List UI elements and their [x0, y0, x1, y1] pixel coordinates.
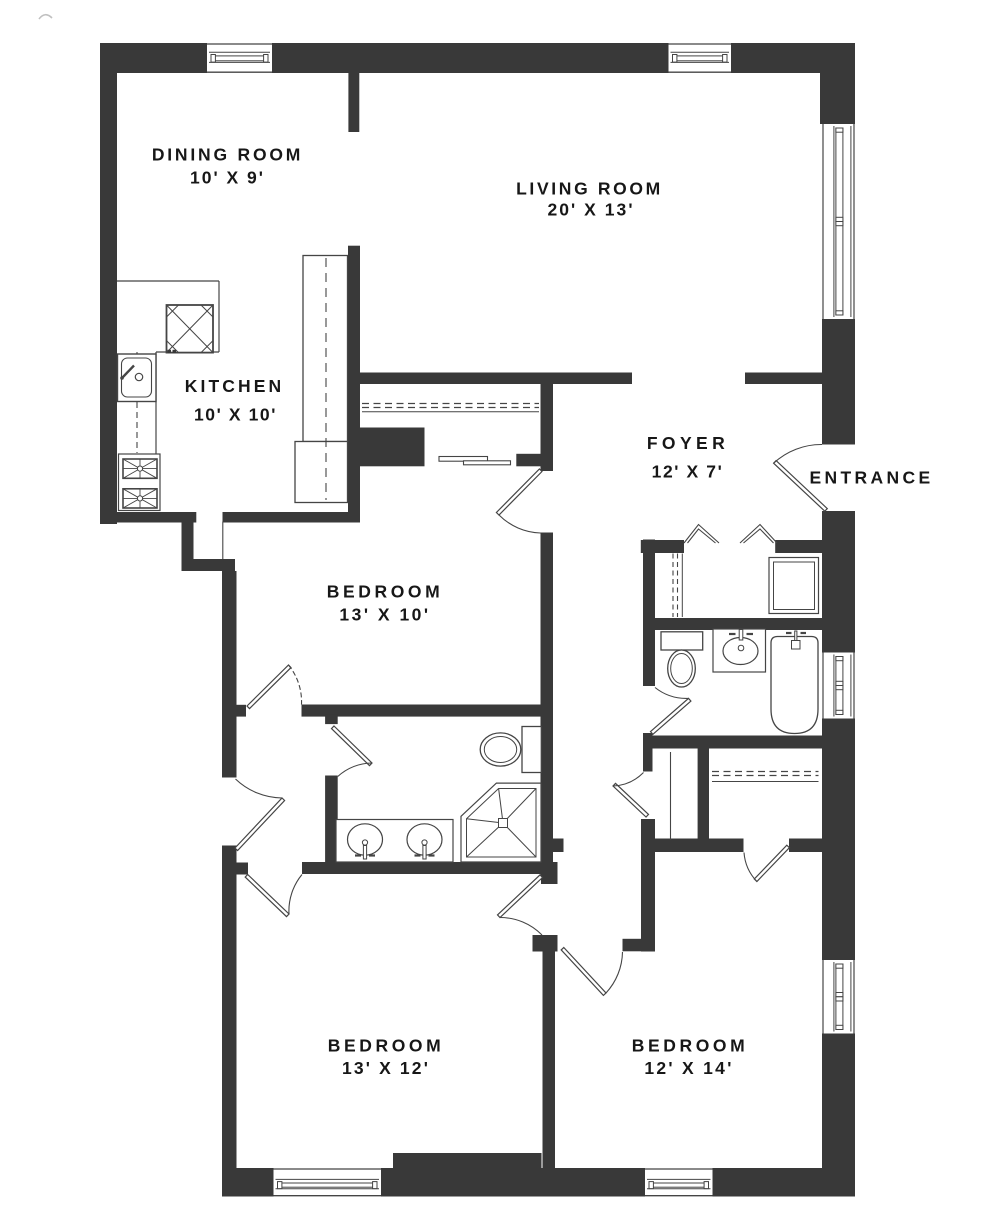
svg-text:ENTRANCE: ENTRANCE	[809, 468, 933, 488]
svg-text:20' X 13': 20' X 13'	[547, 200, 634, 220]
svg-text:KITCHEN: KITCHEN	[185, 376, 284, 396]
svg-text:FOYER: FOYER	[647, 433, 729, 453]
svg-text:BEDROOM: BEDROOM	[632, 1036, 749, 1056]
svg-text:13' X 12': 13' X 12'	[342, 1058, 430, 1078]
svg-text:LIVING ROOM: LIVING ROOM	[516, 179, 663, 199]
svg-text:BEDROOM: BEDROOM	[328, 1036, 445, 1056]
svg-text:10' X 10': 10' X 10'	[194, 405, 277, 425]
svg-text:12' X 14': 12' X 14'	[644, 1058, 733, 1078]
svg-text:BEDROOM: BEDROOM	[327, 582, 444, 602]
svg-text:DINING ROOM: DINING ROOM	[152, 145, 303, 165]
svg-text:10' X 9': 10' X 9'	[190, 168, 265, 188]
svg-text:13' X 10': 13' X 10'	[339, 605, 430, 625]
svg-text:12' X 7': 12' X 7'	[652, 462, 724, 482]
